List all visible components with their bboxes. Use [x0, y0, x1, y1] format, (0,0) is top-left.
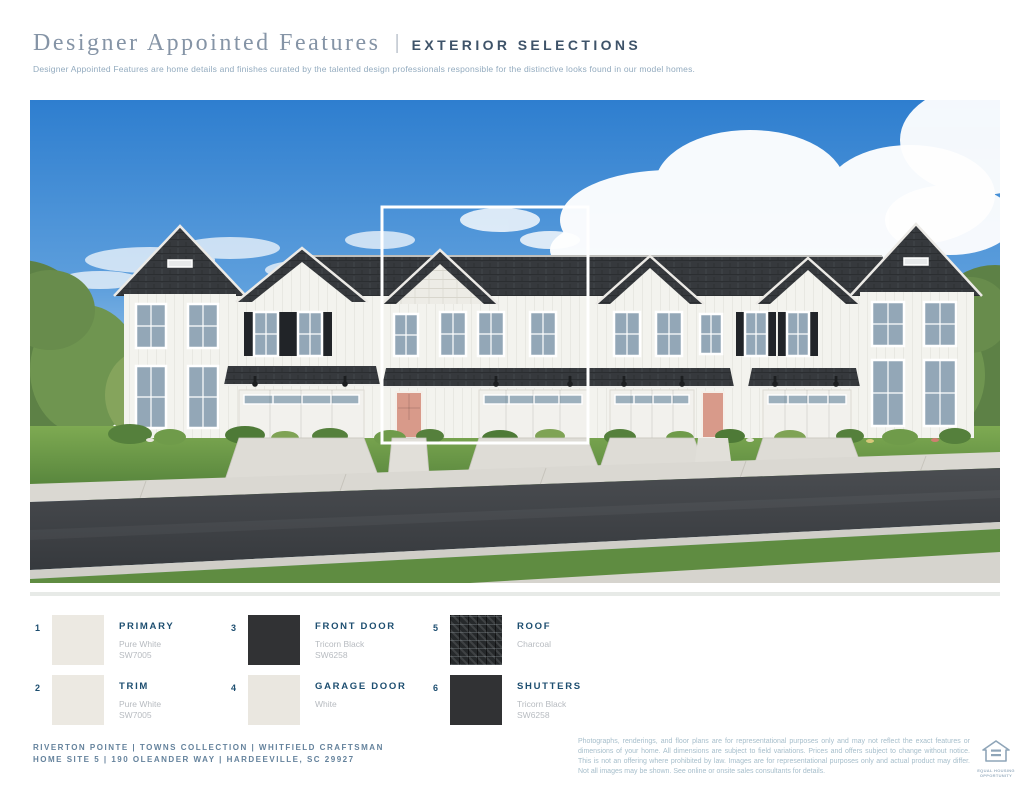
selection-name: FRONT DOOR — [315, 621, 396, 632]
selection-item-roof: 5 ROOF Charcoal — [433, 615, 623, 665]
selection-item-trim: 2 TRIM Pure WhiteSW7005 — [35, 675, 217, 725]
exterior-selections-list: 1 PRIMARY Pure WhiteSW7005 3 FRONT DOOR … — [35, 615, 623, 725]
swatch-trim — [52, 675, 104, 725]
equal-housing-icon — [982, 740, 1010, 762]
swatch-shutters — [450, 675, 502, 725]
selection-item-front-door: 3 FRONT DOOR Tricorn BlackSW6258 — [231, 615, 419, 665]
title-caps: EXTERIOR SELECTIONS — [412, 37, 642, 53]
selection-number: 6 — [433, 675, 450, 693]
selection-detail: Pure WhiteSW7005 — [119, 699, 161, 722]
selection-name: SHUTTERS — [517, 681, 582, 692]
swatch-roof — [450, 615, 502, 665]
selection-item-shutters: 6 SHUTTERS Tricorn BlackSW6258 — [433, 675, 623, 725]
title-divider: | — [394, 32, 399, 55]
swatch-front-door — [248, 615, 300, 665]
selection-name: GARAGE DOOR — [315, 681, 407, 692]
swatch-primary — [52, 615, 104, 665]
page-subtitle: Designer Appointed Features are home det… — [33, 64, 993, 74]
selection-name: PRIMARY — [119, 621, 174, 632]
selection-number: 3 — [231, 615, 248, 633]
selection-number: 4 — [231, 675, 248, 693]
equal-housing-label: EQUAL HOUSING OPPORTUNITY — [977, 768, 1015, 778]
exterior-rendering: .win{fill:#93a7b7;stroke:#ffffff;stroke-… — [30, 100, 1000, 583]
selection-detail: Pure WhiteSW7005 — [119, 639, 174, 662]
swatch-garage-door — [248, 675, 300, 725]
selection-number: 1 — [35, 615, 52, 633]
selection-number: 5 — [433, 615, 450, 633]
equal-housing-logo: EQUAL HOUSING OPPORTUNITY — [977, 740, 1015, 778]
selection-detail: Tricorn BlackSW6258 — [517, 699, 582, 722]
exterior-rendering-image: .win{fill:#93a7b7;stroke:#ffffff;stroke-… — [30, 100, 1000, 583]
section-divider — [30, 592, 1000, 596]
selection-name: TRIM — [119, 681, 161, 692]
page-title: Designer Appointed Features | EXTERIOR S… — [33, 30, 993, 57]
page-header: Designer Appointed Features | EXTERIOR S… — [33, 30, 993, 74]
selection-name: ROOF — [517, 621, 551, 632]
selection-detail: Tricorn BlackSW6258 — [315, 639, 396, 662]
selection-detail: Charcoal — [517, 639, 551, 650]
community-line2: HOME SITE 5 | 190 OLEANDER WAY | HARDEEV… — [33, 754, 384, 766]
selection-detail: White — [315, 699, 407, 710]
selection-number: 2 — [35, 675, 52, 693]
legal-disclaimer: Photographs, renderings, and floor plans… — [578, 737, 970, 777]
community-line1: RIVERTON POINTE | TOWNS COLLECTION | WHI… — [33, 742, 384, 754]
title-serif: Designer Appointed Features — [33, 30, 380, 57]
selection-item-garage-door: 4 GARAGE DOOR White — [231, 675, 419, 725]
page-root: Designer Appointed Features | EXTERIOR S… — [0, 0, 1030, 796]
selection-item-primary: 1 PRIMARY Pure WhiteSW7005 — [35, 615, 217, 665]
community-info: RIVERTON POINTE | TOWNS COLLECTION | WHI… — [33, 742, 384, 767]
